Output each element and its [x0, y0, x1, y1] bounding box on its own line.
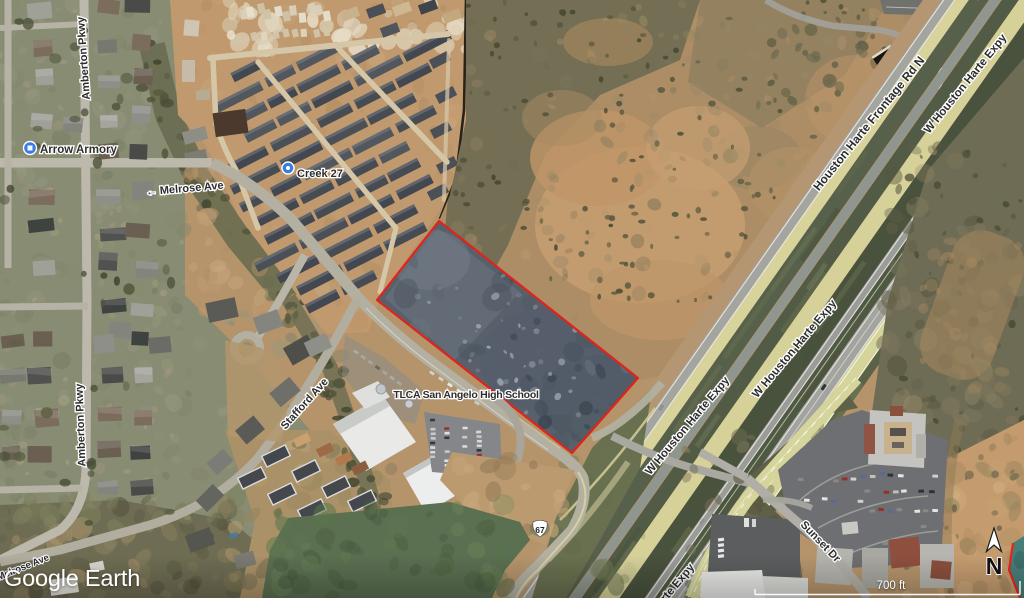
svg-text:Creek 27: Creek 27: [297, 168, 343, 180]
svg-text:Arrow Armory: Arrow Armory: [40, 144, 117, 156]
svg-text:Google Earth: Google Earth: [4, 565, 140, 591]
svg-text:N: N: [986, 553, 1003, 579]
svg-text:TLCA San Angelo High School: TLCA San Angelo High School: [393, 389, 539, 401]
svg-text:67: 67: [535, 525, 545, 535]
svg-text:700 ft: 700 ft: [877, 580, 907, 592]
